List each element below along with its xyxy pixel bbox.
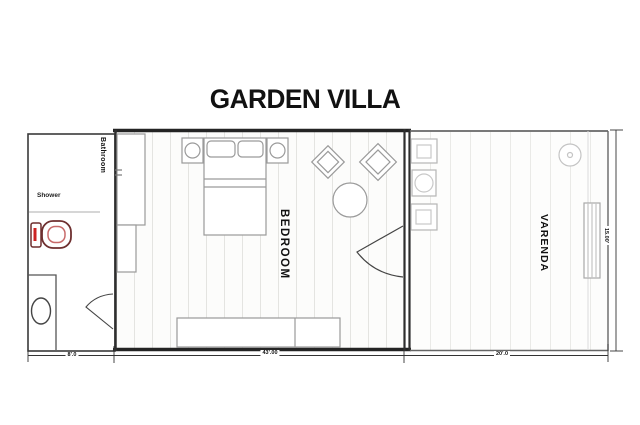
- veranda-steps: [584, 203, 600, 278]
- shower-label: Shower: [37, 192, 60, 199]
- closet-upper: [117, 134, 145, 225]
- double-bed: [204, 138, 266, 235]
- toilet-flush-accent: [34, 228, 37, 241]
- plan-linework: [0, 0, 640, 425]
- pedestal-sink-icon: [32, 298, 51, 324]
- veranda-chair-bottom: [411, 204, 437, 230]
- ceiling-light-icon: [559, 144, 581, 166]
- veranda-room-label: VARENDA: [538, 214, 550, 290]
- lamp-left-icon: [185, 143, 200, 158]
- nightstand-right: [267, 138, 288, 163]
- floor-plan-page: GARDEN VILLA Bathroom Shower BEDROOM VAR…: [0, 0, 640, 425]
- pillow-right: [238, 141, 263, 157]
- bathroom-interior: [28, 212, 113, 350]
- toilet-icon: [31, 221, 71, 248]
- armchair-right: [360, 144, 397, 181]
- nightstand-left: [182, 138, 203, 163]
- round-table: [333, 183, 367, 217]
- bathroom-width-dimension: 8'.0: [66, 352, 79, 358]
- closet-lower: [117, 225, 136, 272]
- bedroom-interior: [115, 134, 403, 347]
- bedroom-door-swing: [357, 226, 403, 277]
- veranda-side-table: [412, 170, 436, 196]
- wardrobe: [177, 318, 340, 347]
- lamp-right-icon: [270, 143, 285, 158]
- veranda-chair-top: [411, 139, 437, 163]
- veranda-width-dimension: 20'.0: [494, 351, 510, 357]
- veranda-interior: [411, 139, 600, 278]
- bathroom-room-label: Bathroom: [99, 137, 106, 185]
- height-dimension: 15.00': [603, 226, 609, 245]
- armchair-left: [312, 146, 345, 179]
- pillow-left: [207, 141, 235, 157]
- bedroom-width-dimension: 43'.00: [260, 350, 279, 356]
- bathroom-door-swing: [86, 294, 113, 329]
- plan-title: GARDEN VILLA: [145, 84, 465, 115]
- bedroom-room-label: BEDROOM: [278, 209, 290, 291]
